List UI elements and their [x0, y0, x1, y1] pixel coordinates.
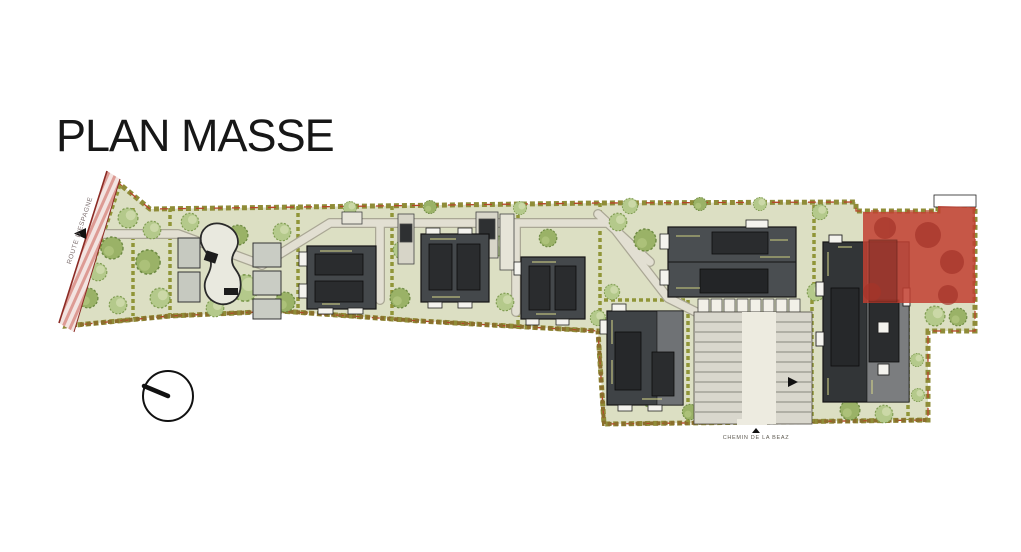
building-north: [660, 220, 796, 297]
pond-deck-2: [224, 288, 238, 295]
site-plan-canvas: [0, 0, 1021, 552]
street-name-label: CHEMIN DE LA BEAZ: [700, 435, 812, 441]
north-arrow-icon: [143, 371, 193, 421]
highlight-overlay: [863, 206, 975, 305]
page-title: PLAN MASSE: [56, 110, 334, 162]
site-plan-page: PLAN MASSE ROUTE D'ESPAGNE CHEMIN DE LA …: [0, 0, 1021, 552]
neighbor-building: [934, 195, 976, 207]
building-pair-1: [299, 246, 376, 314]
building-c: [600, 304, 683, 411]
street-direction-arrow-icon: [752, 428, 760, 433]
parking-lot: [694, 312, 812, 425]
building-pair-3: [514, 257, 585, 325]
street-label-group: CHEMIN DE LA BEAZ: [700, 428, 812, 441]
building-pair-2: [421, 228, 489, 308]
